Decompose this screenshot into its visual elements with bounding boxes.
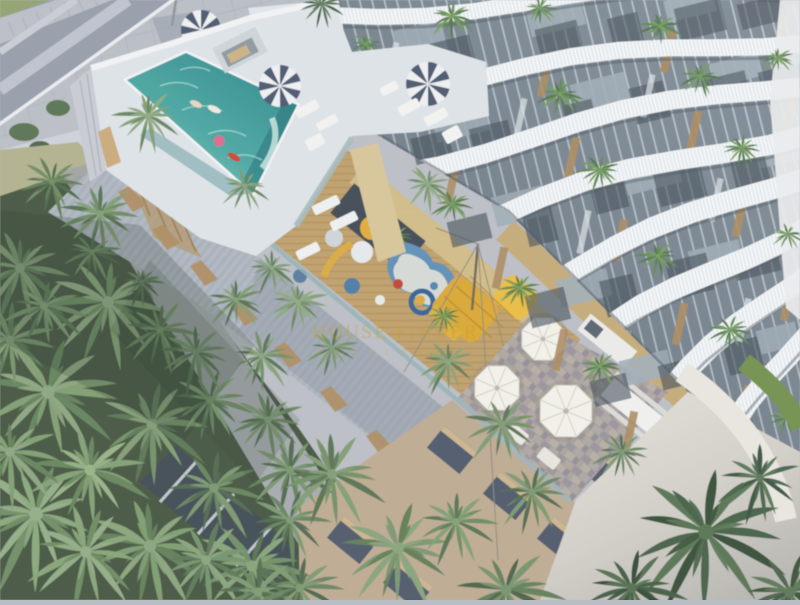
- svg-text:P R O P E R T I E S: P R O P E R T I E S: [317, 348, 476, 357]
- svg-text:HOUSE FINDER: HOUSE FINDER: [313, 322, 480, 343]
